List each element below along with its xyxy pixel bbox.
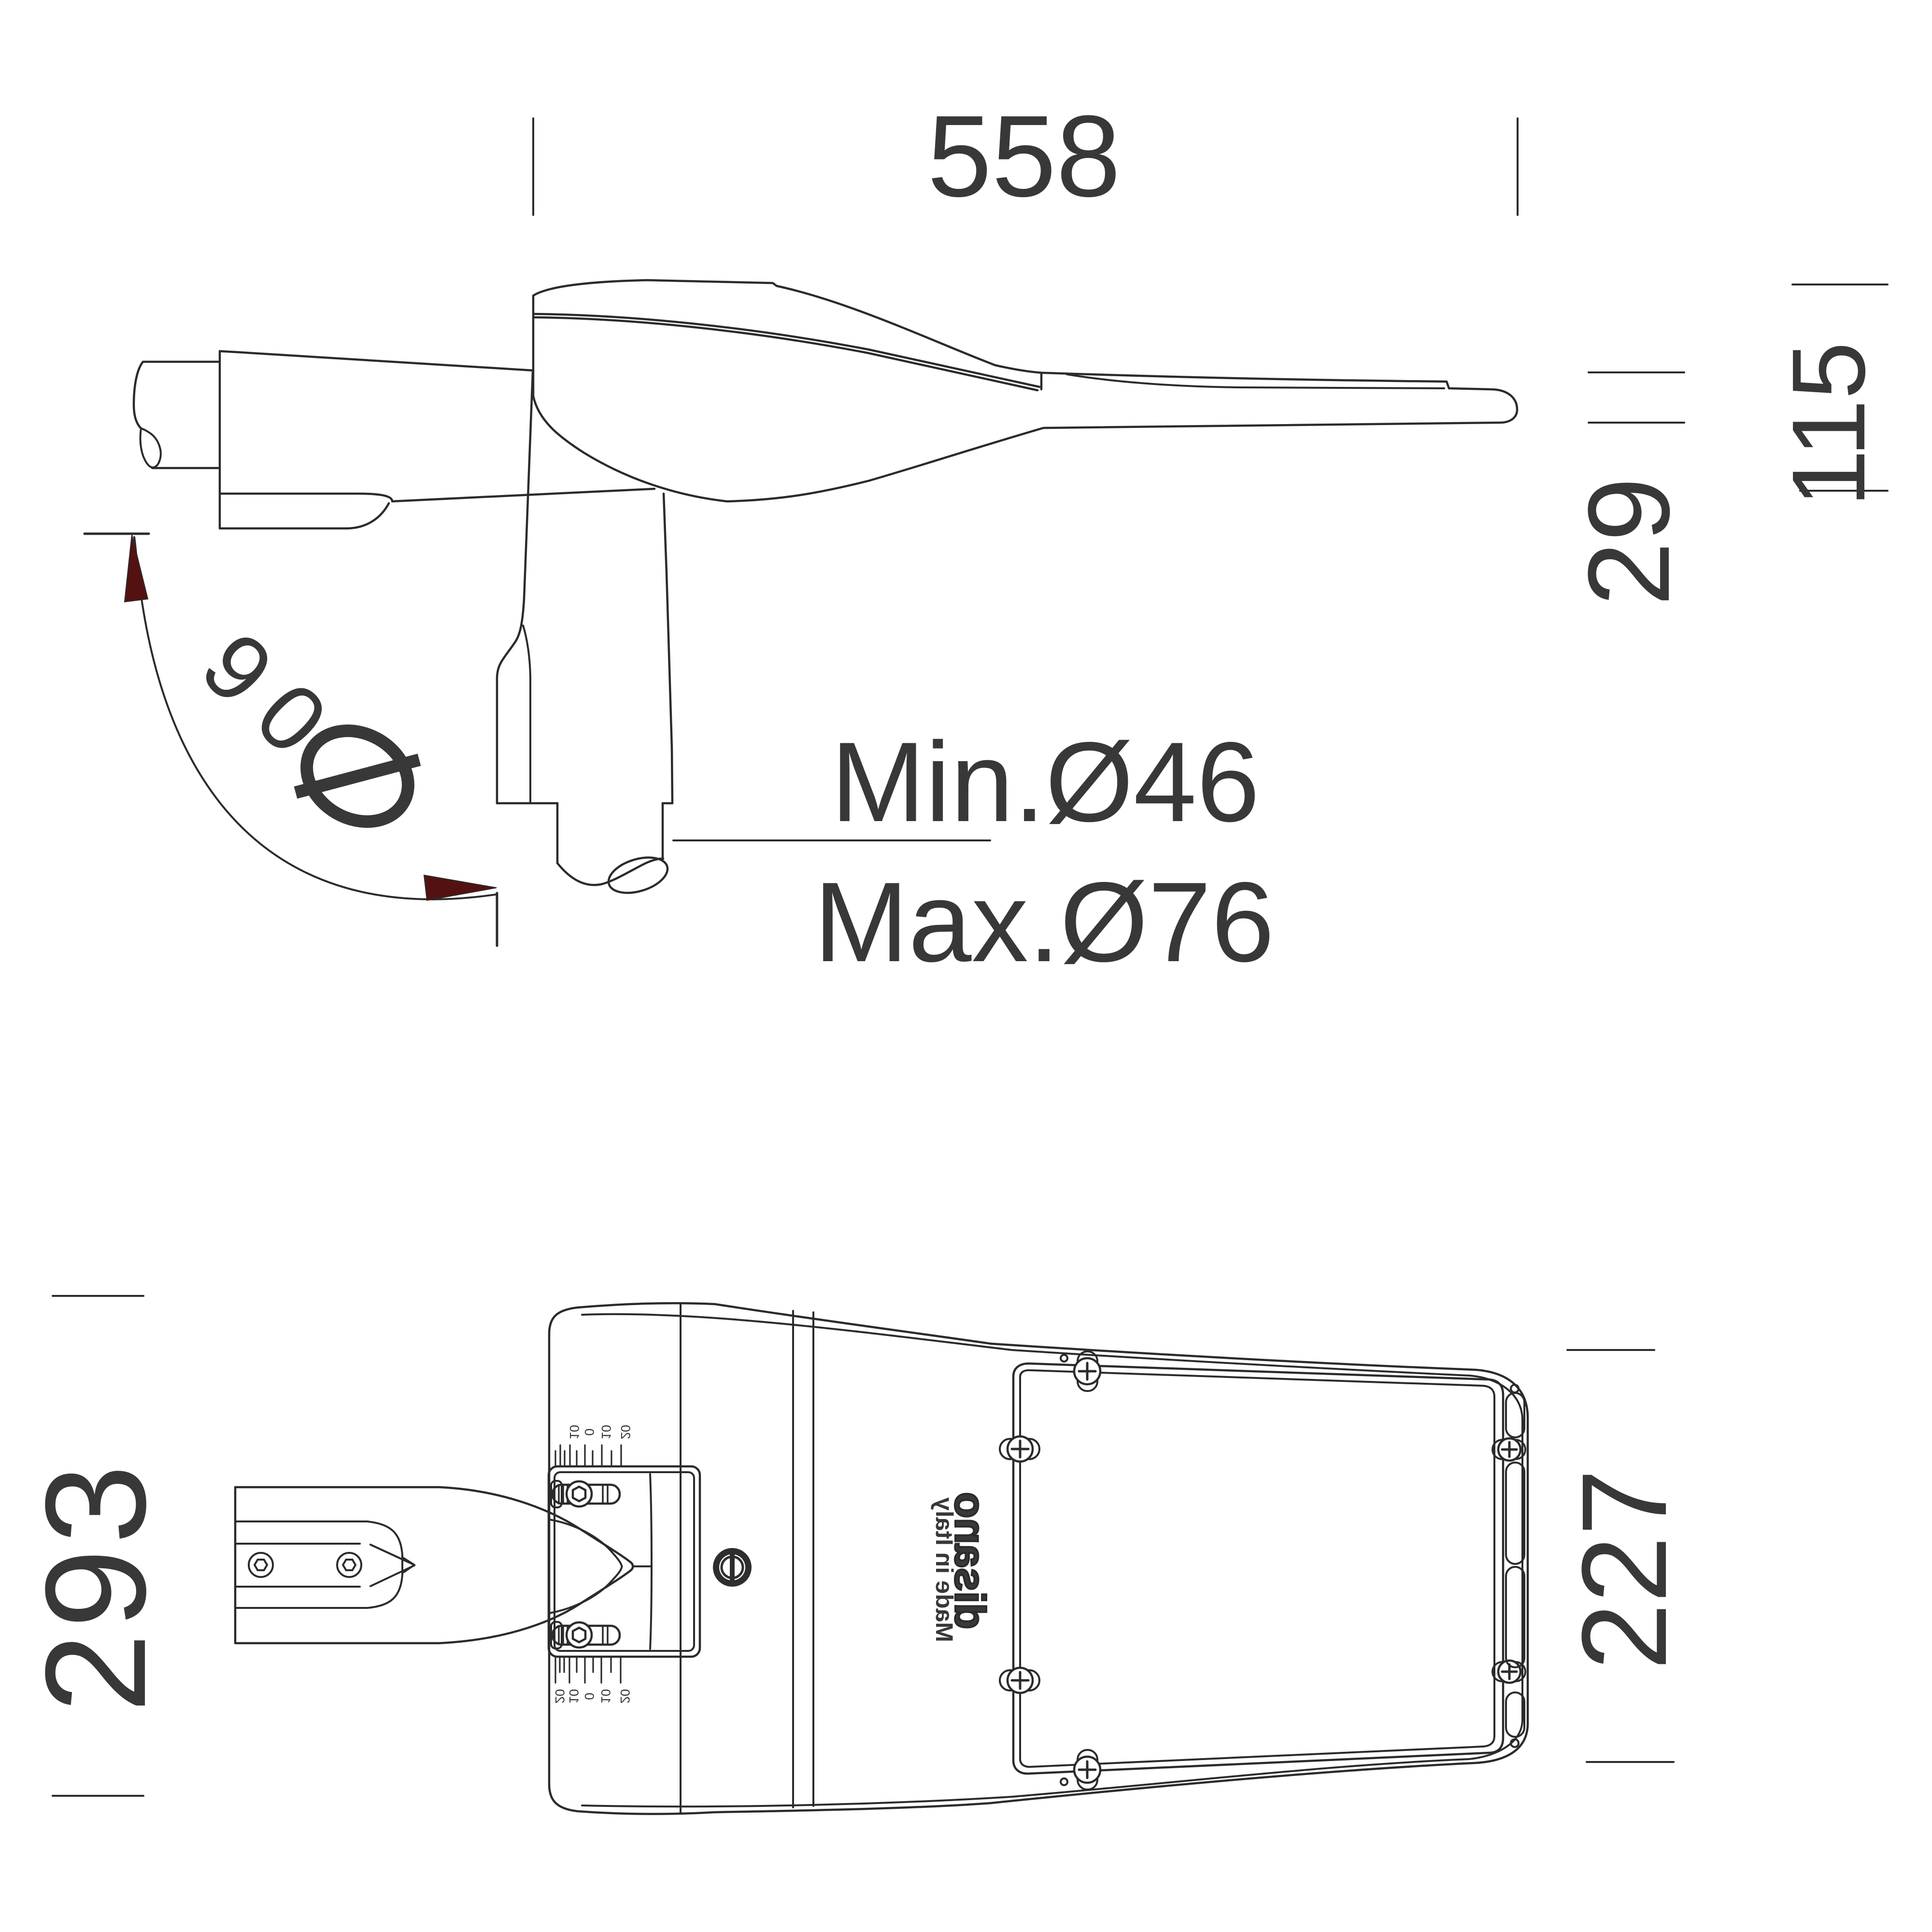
svg-text:Min.Ø46: Min.Ø46 [831, 718, 1260, 845]
svg-text:115: 115 [1770, 341, 1887, 507]
svg-text:Made in Italy: Made in Italy [931, 1497, 958, 1642]
svg-text:10: 10 [599, 1425, 613, 1439]
svg-text:0: 0 [582, 1428, 597, 1435]
svg-text:20: 20 [618, 1425, 633, 1439]
svg-text:10: 10 [598, 1689, 613, 1704]
svg-text:0: 0 [582, 1692, 597, 1700]
svg-text:20: 20 [553, 1689, 567, 1704]
svg-text:293: 293 [15, 1460, 175, 1713]
svg-text:20: 20 [618, 1689, 632, 1704]
svg-text:Max.Ø76: Max.Ø76 [814, 858, 1274, 985]
svg-text:10: 10 [567, 1689, 581, 1704]
svg-text:29: 29 [1564, 477, 1693, 606]
svg-text:558: 558 [927, 91, 1121, 221]
svg-text:10: 10 [567, 1425, 582, 1439]
svg-text:227: 227 [1557, 1469, 1691, 1670]
